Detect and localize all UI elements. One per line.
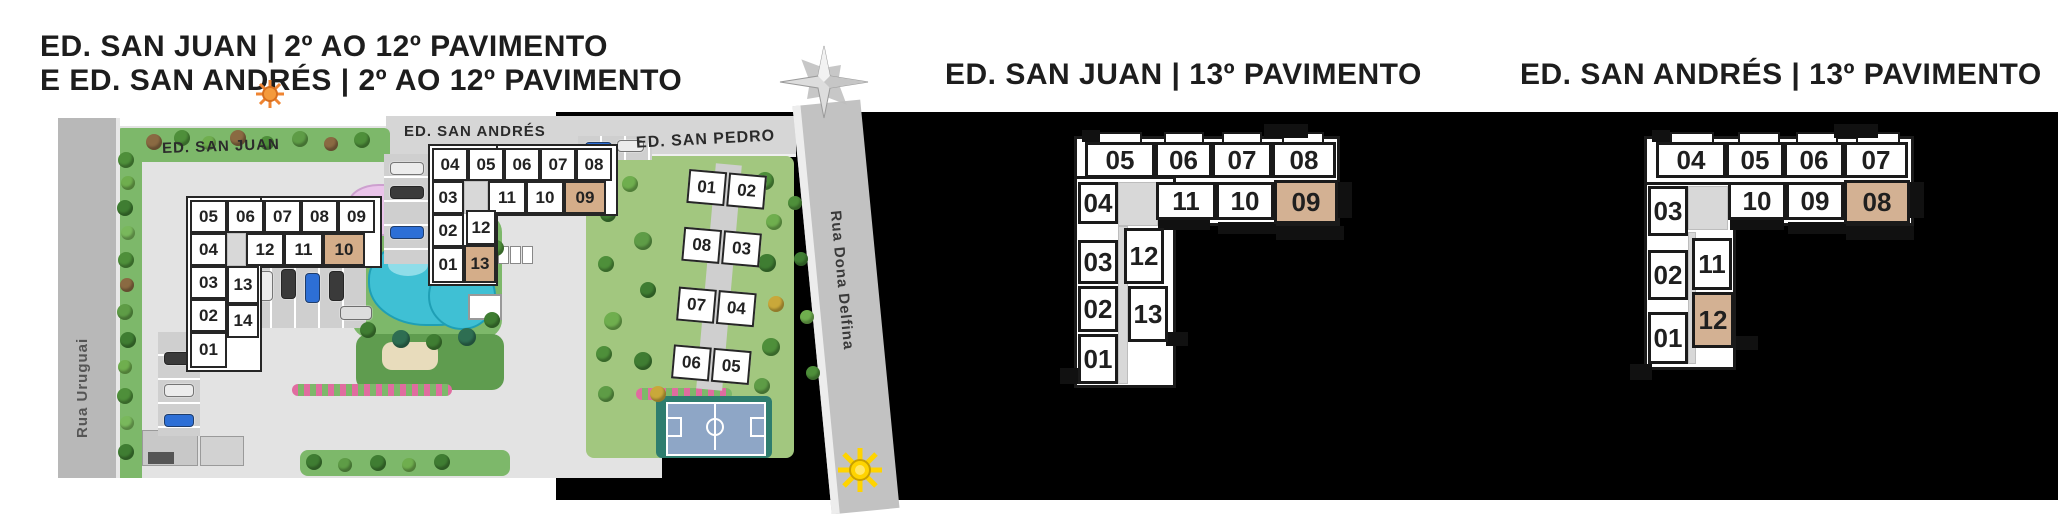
lounger: [522, 246, 533, 264]
plan1-title: ED. SAN JUAN | 13º PAVIMENTO: [945, 58, 1422, 92]
sand-patch: [382, 342, 438, 370]
garden-bottom-strip: [300, 450, 510, 476]
pool-glint: [388, 254, 428, 276]
main-title-line1: ED. SAN JUAN | 2º AO 12º PAVIMENTO: [40, 30, 608, 64]
plan2-title: ED. SAN ANDRÉS | 13º PAVIMENTO: [1520, 58, 2042, 92]
unit-cell: 08: [681, 227, 722, 264]
pergola: [468, 294, 502, 320]
octopus-toy-icon: [388, 202, 406, 220]
unit-cell: 04: [716, 290, 757, 327]
street-label-rua-dona-delfina: Rua Dona Delfina: [827, 210, 864, 421]
lounger: [498, 246, 509, 264]
court-key: [750, 417, 764, 437]
unit-cell: 06: [671, 344, 712, 381]
court-center-circle: [706, 418, 724, 436]
unit-cell: 02: [726, 172, 767, 209]
unit-cell: 03: [721, 230, 762, 267]
basketball-court: [666, 402, 766, 456]
main-title-line2: E ED. SAN ANDRÉS | 2º AO 12º PAVIMENTO: [40, 64, 682, 98]
unit-cell: 07: [676, 287, 717, 324]
compass-rose-icon: [778, 44, 870, 120]
unit-cell: 05: [711, 348, 752, 385]
flower-bed: [292, 384, 452, 396]
sun-icon: [836, 446, 884, 494]
service-block: [200, 436, 244, 466]
lounger: [510, 246, 521, 264]
building-label-san-andres: ED. SAN ANDRÉS: [404, 123, 546, 140]
page: { "titles": { "left_line1": "ED. SAN JUA…: [0, 0, 2058, 500]
court-key: [668, 417, 682, 437]
unit-cell: 01: [686, 169, 727, 206]
service-block: [148, 452, 174, 464]
street-label-rua-uruguai: Rua Uruguai: [74, 268, 91, 438]
sun-icon: [256, 80, 284, 108]
street-rua-uruguai: Rua Uruguai: [58, 118, 120, 478]
